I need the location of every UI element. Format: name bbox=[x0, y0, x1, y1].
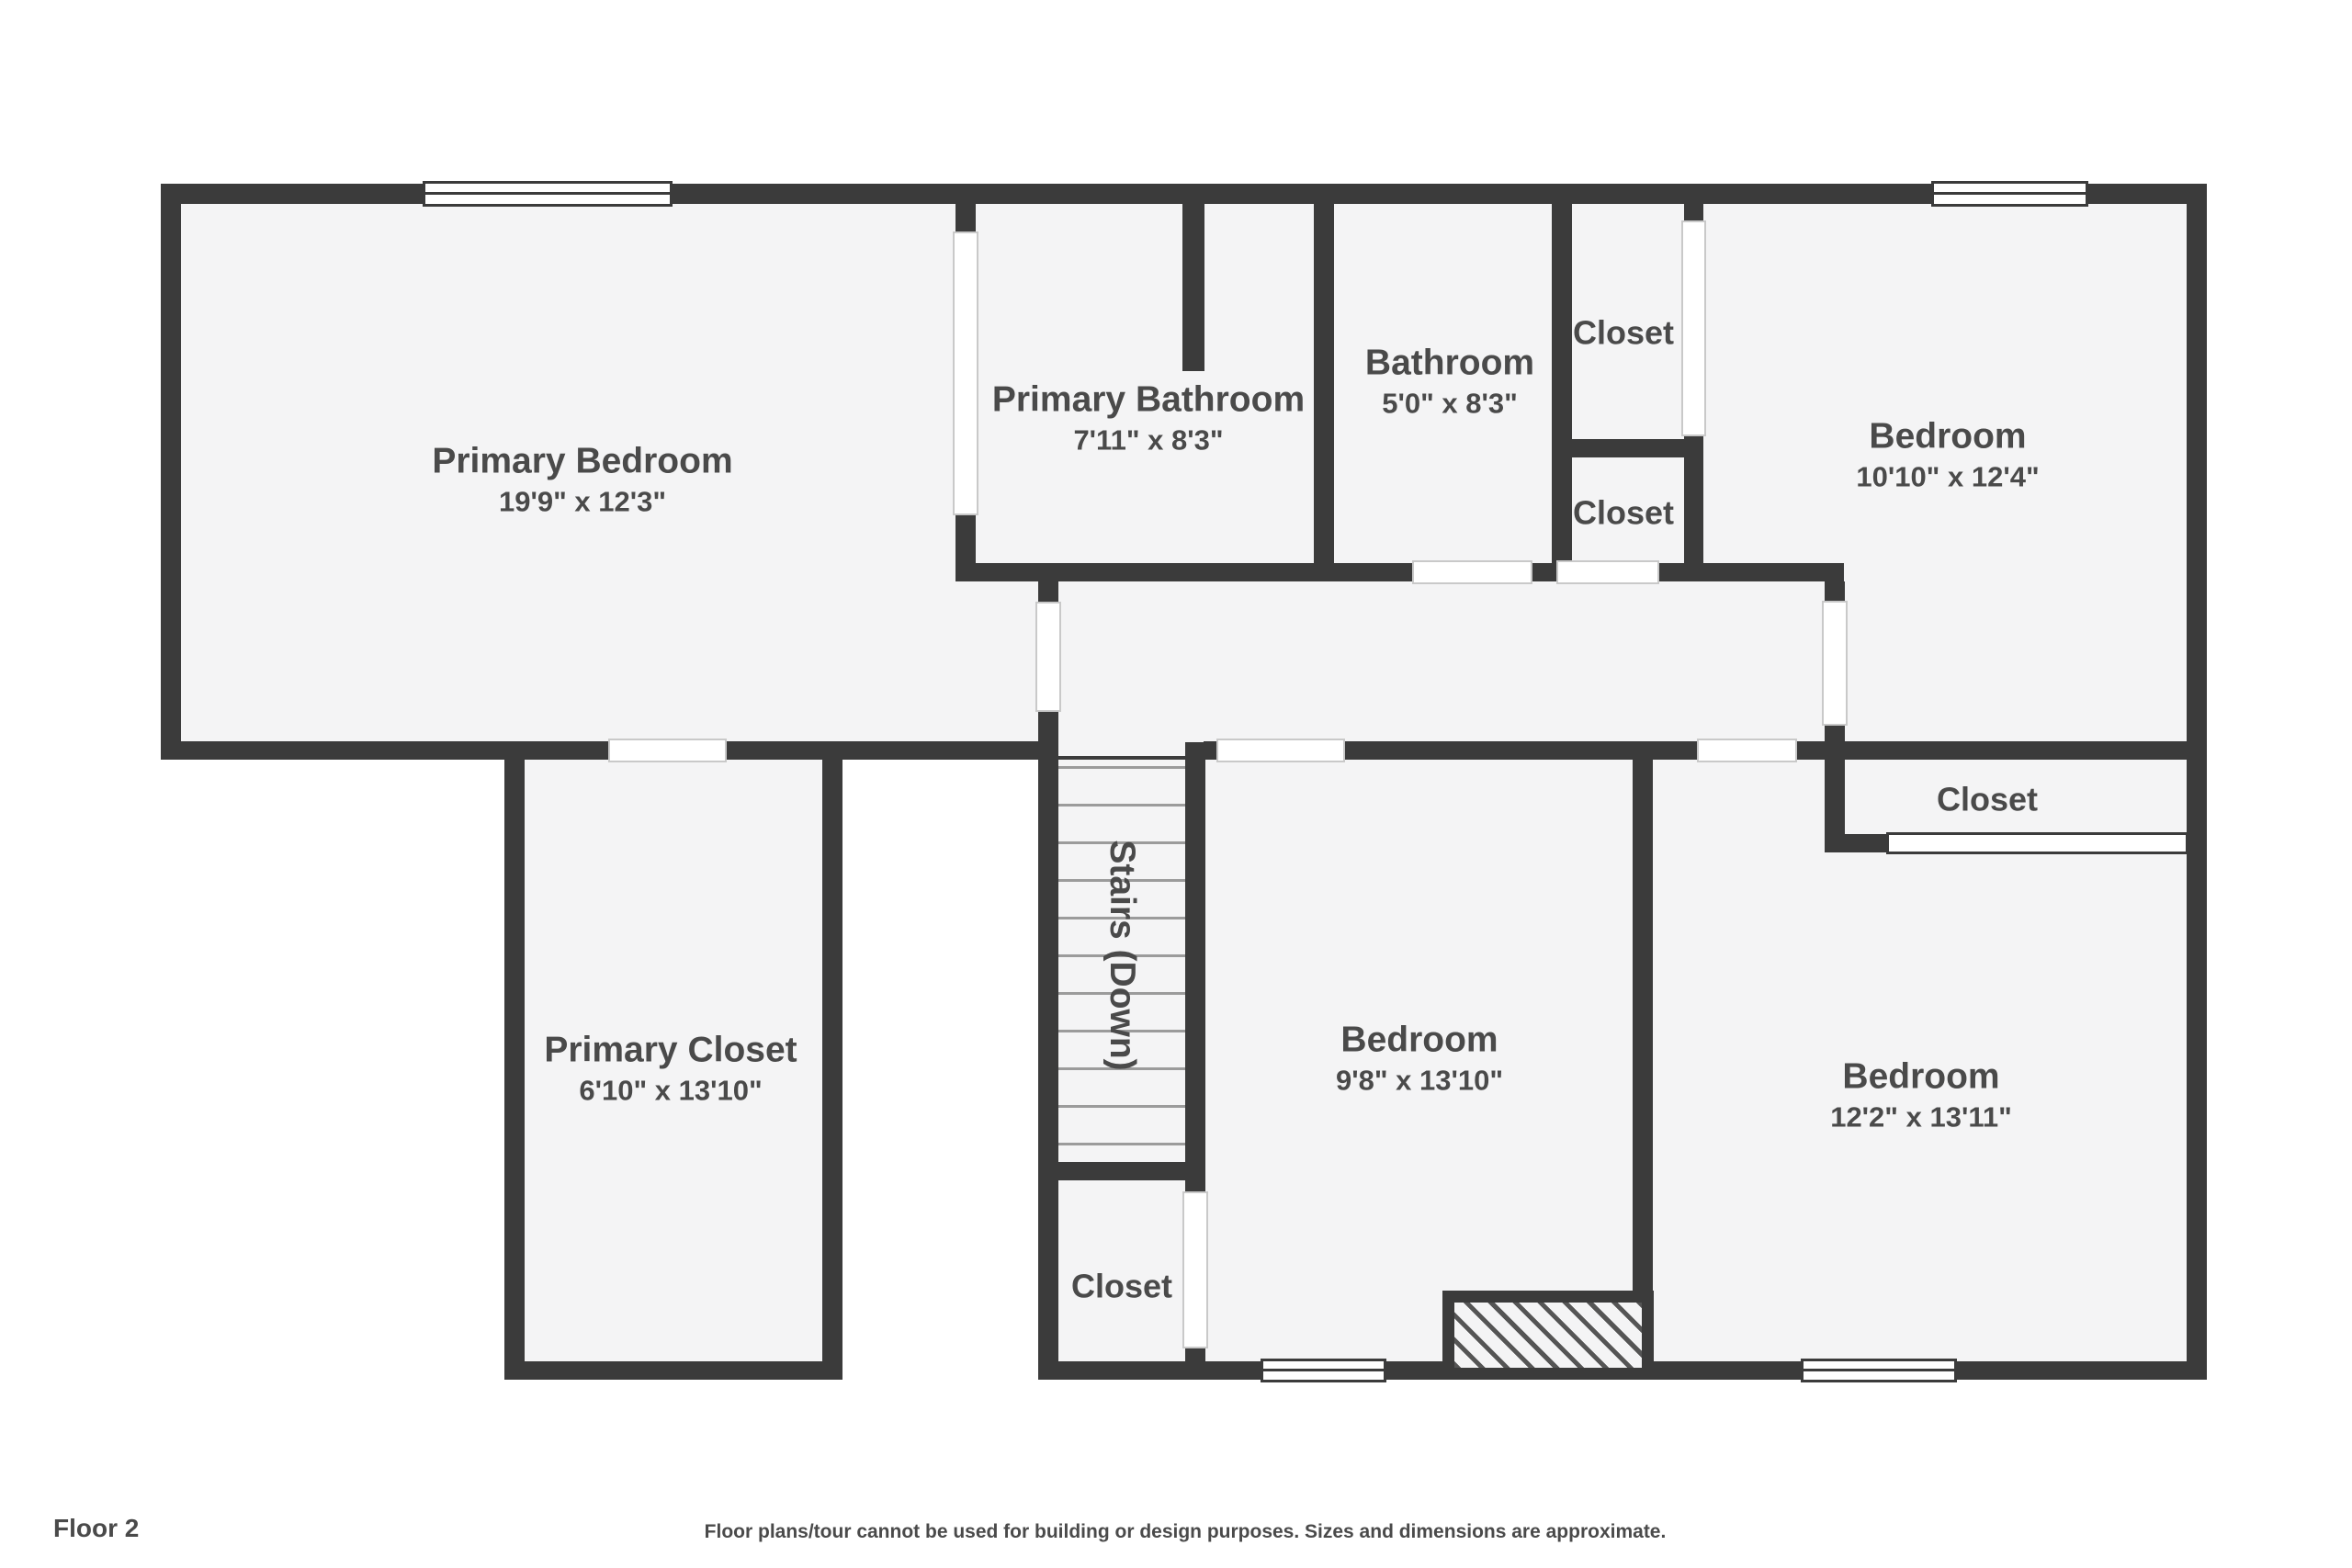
wall bbox=[1342, 741, 1700, 760]
stair-tread bbox=[1058, 804, 1185, 807]
wall bbox=[2187, 184, 2207, 1380]
door-opening bbox=[1216, 739, 1345, 762]
door-opening bbox=[1182, 1191, 1208, 1348]
window-symbol bbox=[1801, 1359, 1957, 1382]
closet-opening-symbol bbox=[1886, 832, 2188, 854]
window-symbol bbox=[1261, 1359, 1386, 1382]
room-name: Closet bbox=[1937, 779, 2038, 820]
room-label-stairs: Stairs (Down) bbox=[1102, 840, 1142, 1070]
stair-tread bbox=[1058, 1143, 1185, 1145]
room-dims: 5'0" x 8'3" bbox=[1365, 386, 1534, 422]
door-opening bbox=[608, 739, 727, 762]
wall bbox=[1825, 723, 1845, 852]
wall bbox=[1182, 204, 1204, 371]
wall bbox=[1185, 742, 1205, 1194]
wall bbox=[1825, 834, 1886, 852]
wall bbox=[1633, 760, 1653, 1291]
window-symbol bbox=[423, 181, 673, 207]
window-symbol bbox=[1931, 181, 2088, 207]
room-label-closet-top: Closet bbox=[1573, 312, 1674, 354]
hatch-area bbox=[1442, 1291, 1654, 1380]
door-opening bbox=[1035, 602, 1061, 712]
wall bbox=[1957, 1361, 2207, 1380]
room-label-bedroom-top-right: Bedroom 10'10" x 12'4" bbox=[1856, 414, 2039, 495]
room-label-primary-closet: Primary Closet 6'10" x 13'10" bbox=[544, 1028, 797, 1109]
wall bbox=[955, 204, 976, 234]
door-opening bbox=[1697, 739, 1797, 762]
room-dims: 19'9" x 12'3" bbox=[432, 484, 732, 520]
room-label-bedroom-right: Bedroom 12'2" x 13'11" bbox=[1830, 1055, 2012, 1135]
room-name: Primary Bedroom bbox=[432, 439, 732, 484]
wall bbox=[822, 756, 842, 1380]
door-opening bbox=[1822, 601, 1848, 726]
wall bbox=[1794, 741, 2207, 760]
stair-top-edge bbox=[1058, 756, 1185, 760]
wall bbox=[161, 741, 611, 760]
wall bbox=[1038, 709, 1058, 1380]
room-name: Primary Bathroom bbox=[992, 378, 1305, 423]
wall bbox=[955, 563, 1415, 581]
stair-tread bbox=[1058, 1105, 1185, 1108]
door-opening bbox=[953, 231, 978, 515]
room-dims: 6'10" x 13'10" bbox=[544, 1073, 797, 1109]
wall bbox=[1552, 439, 1703, 457]
room-name: Primary Closet bbox=[544, 1028, 797, 1073]
room-name: Closet bbox=[1573, 492, 1674, 534]
room-name: Bedroom bbox=[1856, 414, 2039, 459]
wall bbox=[1314, 204, 1334, 581]
stair-tread bbox=[1058, 766, 1185, 769]
room-name: Bathroom bbox=[1365, 341, 1534, 386]
room-name: Bedroom bbox=[1830, 1055, 2012, 1100]
room-label-primary-bathroom: Primary Bathroom 7'11" x 8'3" bbox=[992, 378, 1305, 458]
room-label-bedroom-middle: Bedroom 9'8" x 13'10" bbox=[1336, 1018, 1503, 1099]
wall bbox=[1552, 204, 1572, 581]
room-label-bathroom: Bathroom 5'0" x 8'3" bbox=[1365, 341, 1534, 422]
room-label-closet-right: Closet bbox=[1937, 779, 2038, 820]
wall bbox=[1530, 563, 1559, 581]
wall bbox=[161, 184, 423, 204]
door-opening bbox=[1681, 220, 1706, 436]
disclaimer-text: Floor plans/tour cannot be used for buil… bbox=[705, 1521, 1667, 1543]
room-label-closet-bottom: Closet bbox=[1071, 1266, 1172, 1307]
door-opening bbox=[1412, 560, 1532, 584]
room-label-closet-mid: Closet bbox=[1573, 492, 1674, 534]
door-opening bbox=[1556, 560, 1659, 584]
room-label-primary-bedroom: Primary Bedroom 19'9" x 12'3" bbox=[432, 439, 732, 520]
room-dims: 9'8" x 13'10" bbox=[1336, 1063, 1503, 1099]
wall bbox=[161, 184, 181, 760]
room-name: Closet bbox=[1573, 312, 1674, 354]
wall bbox=[504, 1361, 842, 1380]
room-dims: 7'11" x 8'3" bbox=[992, 423, 1305, 458]
wall bbox=[504, 756, 525, 1380]
floor-tag: Floor 2 bbox=[53, 1514, 139, 1543]
room-dims: 12'2" x 13'11" bbox=[1830, 1100, 2012, 1135]
wall bbox=[1657, 563, 1844, 581]
wall bbox=[1057, 1162, 1205, 1180]
room-name: Bedroom bbox=[1336, 1018, 1503, 1063]
wall bbox=[724, 741, 1058, 760]
floorplan-page: Primary Bedroom 19'9" x 12'3" Primary Ba… bbox=[0, 0, 2352, 1568]
wall bbox=[673, 184, 1931, 204]
room-dims: 10'10" x 12'4" bbox=[1856, 459, 2039, 495]
wall bbox=[1038, 1361, 1261, 1380]
room-name: Closet bbox=[1071, 1266, 1172, 1307]
